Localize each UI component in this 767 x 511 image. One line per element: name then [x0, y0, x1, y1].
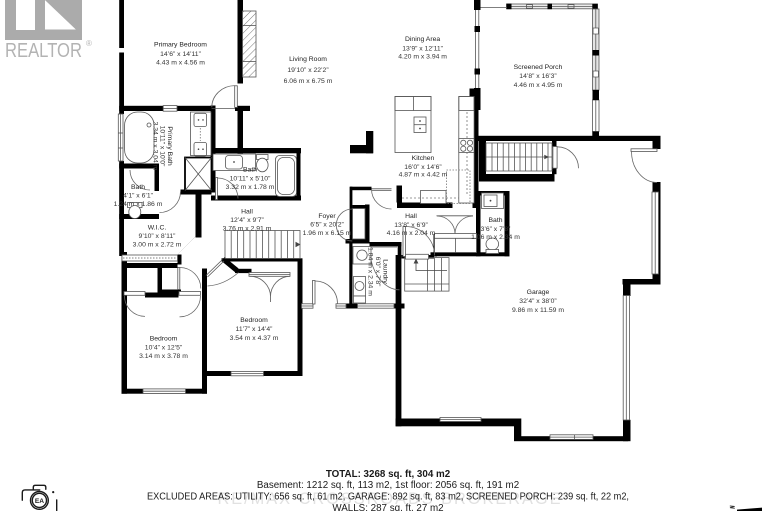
svg-text:3.54 m x 4.37 m: 3.54 m x 4.37 m: [230, 335, 279, 342]
svg-text:16’0” x 14’6”: 16’0” x 14’6”: [404, 164, 442, 171]
svg-text:W.I.C.: W.I.C.: [148, 225, 167, 232]
svg-text:Primary Bedroom: Primary Bedroom: [154, 42, 207, 49]
svg-text:12’4” x 9’7”: 12’4” x 9’7”: [230, 217, 264, 224]
svg-text:6’0” x 7’8”: 6’0” x 7’8”: [374, 257, 381, 288]
svg-text:4.16 m x 2.04 m: 4.16 m x 2.04 m: [387, 230, 436, 237]
svg-text:13’9” x 12’11”: 13’9” x 12’11”: [402, 45, 443, 52]
svg-text:REALTOR: REALTOR: [5, 40, 82, 62]
svg-text:3.14 m x 3.78 m: 3.14 m x 3.78 m: [139, 353, 188, 360]
svg-text:Garage: Garage: [527, 289, 550, 296]
svg-text:Kitchen: Kitchen: [412, 155, 435, 162]
svg-text:®: ®: [86, 39, 92, 48]
svg-text:3.32 m x 1.78 m: 3.32 m x 1.78 m: [226, 184, 275, 191]
svg-text:Dining Area: Dining Area: [405, 36, 440, 43]
svg-text:Bedroom: Bedroom: [240, 317, 268, 324]
svg-text:14’6” x 14’11”: 14’6” x 14’11”: [160, 51, 201, 58]
svg-text:1.06 m x 2.34 m: 1.06 m x 2.34 m: [471, 234, 520, 241]
svg-text:Primary Bath: Primary Bath: [166, 126, 173, 166]
svg-text:14’8” x 16’3”: 14’8” x 16’3”: [519, 73, 557, 80]
svg-text:Bath: Bath: [489, 217, 503, 224]
svg-text:Screened Porch: Screened Porch: [514, 64, 563, 71]
svg-text:EA: EA: [35, 498, 44, 505]
svg-text:Bath: Bath: [131, 184, 145, 191]
svg-text:10’4” x 12’5”: 10’4” x 12’5”: [145, 344, 183, 351]
svg-text:4’1” x 6’1”: 4’1” x 6’1”: [123, 193, 154, 200]
svg-text:EXCLUDED AREAS: UTILITY: 656 s: EXCLUDED AREAS: UTILITY: 656 sq. ft, 61 …: [147, 492, 629, 503]
svg-text:3.34 m x 3.04 m: 3.34 m x 3.04 m: [151, 122, 158, 171]
svg-text:WALLS: 287 sq. ft, 27 m2: WALLS: 287 sq. ft, 27 m2: [332, 503, 443, 511]
svg-text:4.46 m x 4.95 m: 4.46 m x 4.95 m: [514, 82, 563, 89]
svg-text:Bedroom: Bedroom: [150, 336, 178, 343]
svg-text:Hall: Hall: [405, 213, 417, 220]
svg-text:Foyer: Foyer: [318, 213, 336, 220]
svg-text:13’8” x 6’9”: 13’8” x 6’9”: [394, 222, 428, 229]
svg-text:6.06 m x 6.75 m: 6.06 m x 6.75 m: [284, 78, 333, 85]
svg-text:10’11” x 5’10”: 10’11” x 5’10”: [230, 175, 271, 182]
svg-text:4.87 m x 4.42 m: 4.87 m x 4.42 m: [399, 172, 448, 179]
svg-text:9’10” x 8’11”: 9’10” x 8’11”: [139, 233, 177, 240]
svg-text:Living Room: Living Room: [289, 56, 327, 63]
svg-text:4.20 m x 3.94 m: 4.20 m x 3.94 m: [398, 54, 447, 61]
svg-text:Basement: 1212 sq. ft, 113 m2,: Basement: 1212 sq. ft, 113 m2, 1st floor…: [257, 480, 519, 491]
svg-text:3.00 m x 2.72 m: 3.00 m x 2.72 m: [133, 241, 182, 248]
svg-text:19’10” x 22’2”: 19’10” x 22’2”: [287, 67, 329, 74]
svg-text:Hall: Hall: [241, 209, 253, 216]
svg-text:Bath: Bath: [243, 167, 257, 174]
svg-text:10’11” x 10’0”: 10’11” x 10’0”: [159, 126, 166, 167]
svg-text:32’4” x 38’0”: 32’4” x 38’0”: [519, 298, 557, 305]
svg-text:TOTAL: 3268 sq. ft, 304 m2: TOTAL: 3268 sq. ft, 304 m2: [326, 469, 451, 480]
svg-text:6’5” x 20’2”: 6’5” x 20’2”: [310, 222, 344, 229]
svg-text:Laundry: Laundry: [381, 259, 388, 284]
svg-text:1.84 m x 2.34 m: 1.84 m x 2.34 m: [367, 247, 374, 296]
svg-text:3.76 m x 2.91 m: 3.76 m x 2.91 m: [223, 226, 272, 233]
svg-text:1.24 m x 1.86 m: 1.24 m x 1.86 m: [114, 201, 163, 208]
svg-text:4.43 m x 4.56 m: 4.43 m x 4.56 m: [156, 60, 205, 67]
svg-text:3’6” x 7’8”: 3’6” x 7’8”: [481, 226, 512, 233]
svg-text:1.96 m x 6.15 m: 1.96 m x 6.15 m: [303, 230, 352, 237]
svg-text:9.86 m x 11.59 m: 9.86 m x 11.59 m: [512, 307, 564, 314]
svg-text:11’7” x 14’4”: 11’7” x 14’4”: [236, 326, 274, 333]
